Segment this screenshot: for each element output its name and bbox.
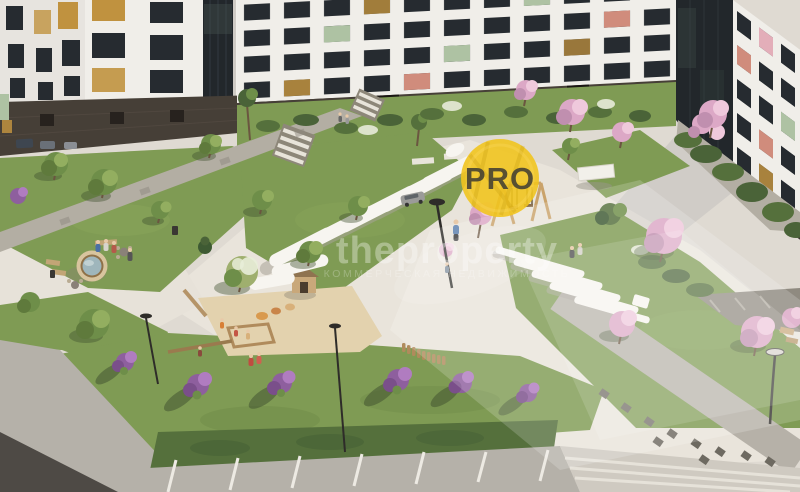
pro-logo-badge: PRO (461, 139, 539, 217)
white-flower-bush (597, 99, 615, 109)
person (249, 354, 254, 366)
child (220, 318, 224, 328)
trash-bin (50, 270, 55, 278)
render-canvas: theproperty КОММЕРЧЕСКАЯ НЕДВИЖИМОСТЬ PR… (0, 0, 800, 492)
person (345, 114, 349, 124)
person (96, 240, 101, 252)
canopy-table (576, 164, 615, 190)
trash-bin (172, 226, 178, 235)
white-flower-bush (358, 125, 378, 135)
person (112, 241, 117, 253)
building-left-windows (6, 2, 80, 100)
stairwell-glazing (203, 0, 233, 98)
child (234, 326, 238, 336)
person (128, 248, 133, 261)
person (338, 112, 342, 122)
watermark-site-text: theproperty (336, 230, 558, 272)
child (246, 329, 250, 339)
white-flower-bush (442, 101, 462, 111)
child (198, 346, 202, 356)
person (257, 352, 262, 364)
watermark: theproperty КОММЕРЧЕСКАЯ НЕДВИЖИМОСТЬ (324, 230, 571, 280)
courtyard-aerial-render: theproperty КОММЕРЧЕСКАЯ НЕДВИЖИМОСТЬ PR… (0, 0, 800, 492)
person (104, 239, 109, 251)
pink-bush (688, 126, 700, 138)
pro-logo-text: PRO (465, 161, 535, 196)
watermark-subtitle-text: КОММЕРЧЕСКАЯ НЕДВИЖИМОСТЬ (324, 268, 571, 280)
